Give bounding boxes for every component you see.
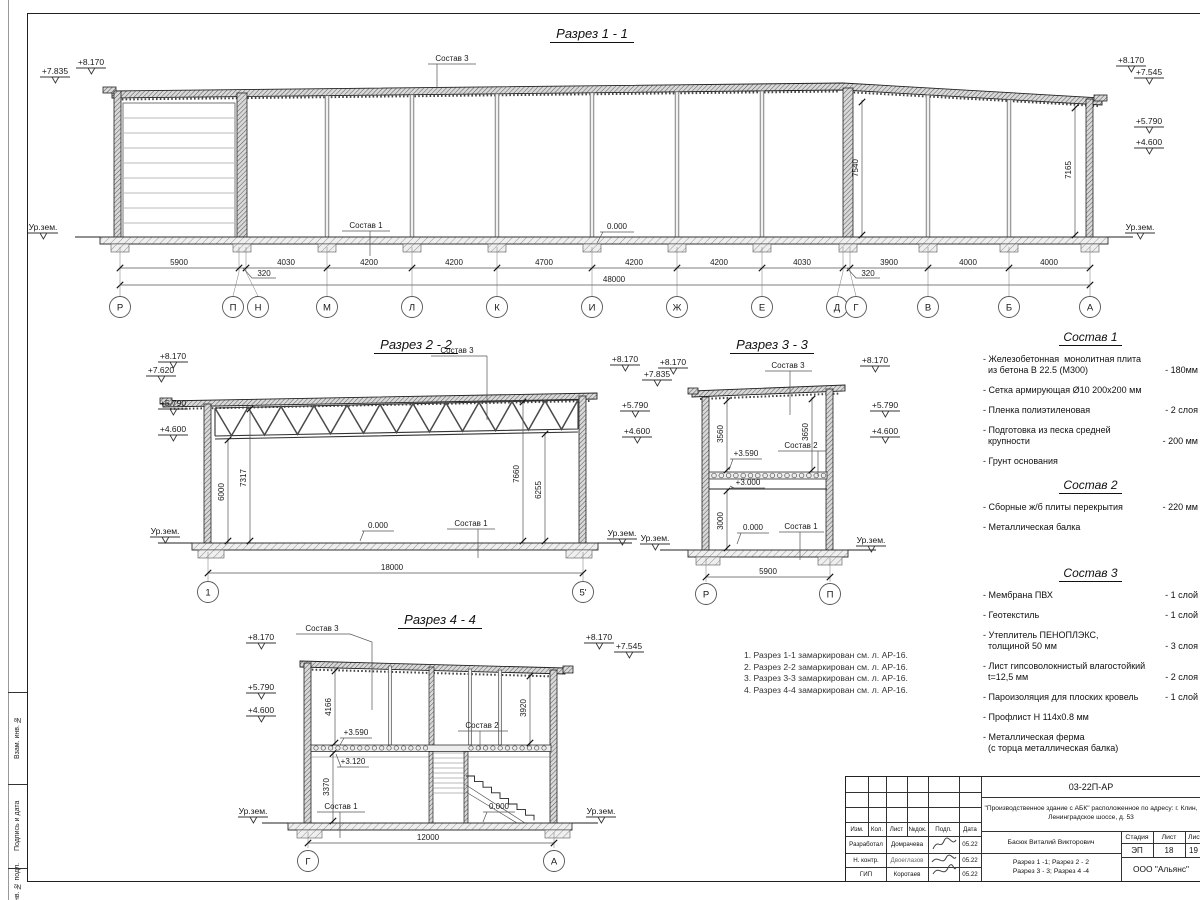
dim-label: 320 xyxy=(257,269,271,278)
sostav1-label: Состав 1 xyxy=(784,522,818,531)
svg-text:Е: Е xyxy=(759,303,765,314)
svg-text:И: И xyxy=(589,303,596,314)
axis-label: 1 xyxy=(205,588,210,599)
dim-label: 3900 xyxy=(880,258,898,267)
tb-date: 05.22 xyxy=(959,836,981,853)
svg-text:+4.600: +4.600 xyxy=(1136,137,1163,147)
composition-3: Состав 3 - Мембрана ПВХ- 1 слой - Геотек… xyxy=(983,566,1198,763)
section2-drawing: 6000 7317 7660 6255 Состав 3 0.000 Соста… xyxy=(146,346,652,603)
svg-text:Н: Н xyxy=(255,303,262,314)
svg-text:К: К xyxy=(494,303,500,314)
svg-text:Ур.зем.: Ур.зем. xyxy=(29,222,58,232)
composition-item: - Металлическая балка xyxy=(983,522,1198,533)
composition-1-title: Состав 1 xyxy=(983,330,1198,344)
dim-label: 4000 xyxy=(1040,258,1058,267)
notes: 1. Разрез 1-1 замаркирован см. л. АР-16.… xyxy=(744,650,964,696)
zero-level-label: 0.000 xyxy=(489,802,510,811)
svg-text:+4.600: +4.600 xyxy=(624,426,651,436)
tb-role: Разработал xyxy=(846,836,886,853)
composition-item: - Геотекстиль- 1 слой xyxy=(983,610,1198,621)
level-label: +3.590 xyxy=(344,728,369,737)
elevation-mark: +8.170 xyxy=(246,632,276,649)
section3-drawing: 3560 3650 3000 Состав 3 +3.590 Состав 2 … xyxy=(640,355,900,605)
tb-doc-number: 03-22П-АР xyxy=(981,777,1200,797)
svg-text:Ур.зем.: Ур.зем. xyxy=(587,806,616,816)
tb-col-ndok: №док. xyxy=(907,822,928,836)
elevation-mark: +8.170 xyxy=(76,57,106,74)
svg-text:+5.790: +5.790 xyxy=(1136,116,1163,126)
svg-text:+8.170: +8.170 xyxy=(78,57,105,67)
composition-item: - Подготовка из песка средней крупности-… xyxy=(983,425,1198,447)
drawing-sheet: Взам. инв. № Подпись и дата Инв. № подл.… xyxy=(0,0,1200,900)
dim-label: 4200 xyxy=(710,258,728,267)
tb-col-list: Лист xyxy=(886,822,907,836)
vdim-label: 6000 xyxy=(217,483,226,501)
axis-label: 5' xyxy=(579,588,586,599)
elevation-mark: +5.790 xyxy=(246,682,276,699)
composition-item: - Пароизоляция для плоских кровель- 1 сл… xyxy=(983,692,1198,703)
tb-sheet-titles: Разрез 1 -1; Разрез 2 - 2 Разрез 3 - 3; … xyxy=(981,853,1121,881)
note-line: 1. Разрез 1-1 замаркирован см. л. АР-16. xyxy=(744,650,964,662)
total-dim-label: 18000 xyxy=(381,563,404,572)
signature xyxy=(930,854,958,880)
sostav2-label: Состав 2 xyxy=(784,441,818,450)
section1-columns xyxy=(325,91,1011,237)
vdim-label: 7540 xyxy=(851,159,860,177)
sostav1-label: Состав 1 xyxy=(349,221,383,230)
note-line: 3. Разрез 3-3 замаркирован см. л. АР-16. xyxy=(744,673,964,685)
svg-text:+8.170: +8.170 xyxy=(1118,55,1145,65)
ground-level-mark: Ур.зем. xyxy=(238,806,268,823)
level-label: +3.000 xyxy=(736,478,761,487)
axis-label: Г xyxy=(305,857,310,868)
composition-item: - Лист гипсоволокнистый влагостойкий t=1… xyxy=(983,661,1198,683)
svg-text:+8.170: +8.170 xyxy=(586,632,613,642)
svg-text:Ур.зем.: Ур.зем. xyxy=(151,526,180,536)
total-dim-label: 12000 xyxy=(417,833,440,842)
signature xyxy=(930,836,958,853)
tb-col-data: Дата xyxy=(959,822,981,836)
elevation-mark: +4.600 xyxy=(870,426,900,443)
vdim-label: 7317 xyxy=(239,469,248,487)
composition-2-title: Состав 2 xyxy=(983,478,1198,492)
svg-text:+4.600: +4.600 xyxy=(160,424,187,434)
svg-text:+8.170: +8.170 xyxy=(660,357,687,367)
level-label: +3.120 xyxy=(341,757,366,766)
svg-text:Ур.зем.: Ур.зем. xyxy=(239,806,268,816)
dim-label: 4030 xyxy=(277,258,295,267)
tb-project-name: "Производственное здание с АБК" располож… xyxy=(984,797,1198,831)
ground-level-mark: Ур.зем. xyxy=(28,222,58,239)
svg-text:+5.790: +5.790 xyxy=(622,400,649,410)
axis-label: Р xyxy=(703,590,709,601)
tb-sheets-label: Лист xyxy=(1185,831,1200,843)
tb-role: Н. контр. xyxy=(846,853,886,867)
svg-text:Г: Г xyxy=(853,303,858,314)
vdim-label: 3370 xyxy=(322,778,331,796)
tb-stage-label: Стадия xyxy=(1121,831,1153,843)
composition-item: - Профлист Н 114х0.8 мм xyxy=(983,712,1198,723)
svg-text:Ур.зем.: Ур.зем. xyxy=(1126,222,1155,232)
composition-item: - Мембрана ПВХ- 1 слой xyxy=(983,590,1198,601)
total-dim-label: 5900 xyxy=(759,567,777,576)
tb-company: ООО "Альянс" xyxy=(1121,857,1200,881)
sostav3-label: Состав 3 xyxy=(440,346,474,355)
sostav1-label: Состав 1 xyxy=(454,519,488,528)
total-dim-label: 48000 xyxy=(603,275,626,284)
svg-text:+7.835: +7.835 xyxy=(42,66,69,76)
note-line: 2. Разрез 2-2 замаркирован см. л. АР-16. xyxy=(744,662,964,674)
elevation-mark: +4.600 xyxy=(246,705,276,722)
dim-label: 4200 xyxy=(360,258,378,267)
svg-text:+5.790: +5.790 xyxy=(160,398,187,408)
elevation-mark: +5.790 xyxy=(870,400,900,417)
tb-name: Домрачева xyxy=(886,836,928,853)
vdim-label: 3650 xyxy=(801,423,810,441)
note-line: 4. Разрез 4-4 замаркирован см. л. АР-16. xyxy=(744,685,964,697)
svg-text:Ж: Ж xyxy=(673,303,682,314)
svg-text:+7.835: +7.835 xyxy=(644,369,671,379)
elevation-mark: +8.170 xyxy=(610,354,640,371)
zero-level-label: 0.000 xyxy=(368,521,389,530)
svg-text:Л: Л xyxy=(409,303,415,314)
composition-item: - Грунт основания xyxy=(983,456,1198,467)
ground-level-mark: Ур.зем. xyxy=(1125,222,1155,239)
svg-text:Ур.зем.: Ур.зем. xyxy=(641,533,670,543)
svg-text:М: М xyxy=(323,303,331,314)
sostav1-label: Состав 1 xyxy=(324,802,358,811)
elevation-mark: +7.620 xyxy=(146,365,176,382)
vdim-label: 3920 xyxy=(519,699,528,717)
svg-text:+7.620: +7.620 xyxy=(148,365,175,375)
dim-label: 5900 xyxy=(170,258,188,267)
svg-text:Б: Б xyxy=(1006,303,1012,314)
svg-text:+8.170: +8.170 xyxy=(862,355,889,365)
svg-text:+8.170: +8.170 xyxy=(160,351,187,361)
elevation-mark: +4.600 xyxy=(1134,137,1164,154)
elevation-mark: +4.600 xyxy=(622,426,652,443)
dim-label: 4200 xyxy=(445,258,463,267)
elevation-mark: +5.790 xyxy=(158,398,188,415)
vdim-label: 3560 xyxy=(716,425,725,443)
svg-text:Ур.зем.: Ур.зем. xyxy=(857,535,886,545)
ground-level-mark: Ур.зем. xyxy=(607,528,637,545)
svg-text:+8.170: +8.170 xyxy=(248,632,275,642)
tb-role: ГИП xyxy=(846,867,886,881)
tb-sheet-label: Лист xyxy=(1153,831,1185,843)
elevation-mark: +5.790 xyxy=(620,400,650,417)
sostav3-label: Состав 3 xyxy=(305,624,339,633)
svg-text:Ур.зем.: Ур.зем. xyxy=(608,528,637,538)
composition-1: Состав 1 - Железобетонная монолитная пли… xyxy=(983,330,1198,476)
tb-name: Коротаев xyxy=(886,867,928,881)
composition-item: - Сетка армирующая Ø10 200х200 мм xyxy=(983,385,1198,396)
ground-level-mark: Ур.зем. xyxy=(150,526,180,543)
section1-drawing: Состав 3 Состав 1 0.000 7540 7165 +7.835… xyxy=(28,54,1164,318)
tb-col-podp: Подп. xyxy=(928,822,959,836)
svg-text:+5.790: +5.790 xyxy=(872,400,899,410)
elevation-mark: +7.835 xyxy=(642,369,672,386)
vdim-label: 4166 xyxy=(324,698,333,716)
tb-date: 05.22 xyxy=(959,867,981,881)
elevation-mark: +8.170 xyxy=(860,355,890,372)
level-label: +3.590 xyxy=(734,449,759,458)
elevation-mark: +8.170 xyxy=(584,632,614,649)
svg-text:Д: Д xyxy=(834,303,841,314)
tb-stage-value: ЭП xyxy=(1121,843,1153,857)
dim-label: 4030 xyxy=(793,258,811,267)
composition-2: Состав 2 - Сборные ж/б плиты перекрытия-… xyxy=(983,478,1198,542)
ground-level-mark: Ур.зем. xyxy=(856,535,886,552)
svg-text:А: А xyxy=(1087,303,1094,314)
dim-label: 320 xyxy=(861,269,875,278)
section1-footings xyxy=(111,244,1099,252)
svg-text:+7.545: +7.545 xyxy=(616,641,643,651)
svg-text:+4.600: +4.600 xyxy=(248,705,275,715)
title-block: Изм. Кол. Лист №док. Подп. Дата Разработ… xyxy=(845,776,1200,882)
svg-text:Р: Р xyxy=(117,303,123,314)
dim-label: 4000 xyxy=(959,258,977,267)
axis-label: А xyxy=(551,857,558,868)
axis-label: П xyxy=(827,590,834,601)
svg-text:+4.600: +4.600 xyxy=(872,426,899,436)
vdim-label: 7660 xyxy=(512,465,521,483)
tb-col-kol: Кол. xyxy=(868,822,886,836)
elevation-mark: +7.835 xyxy=(40,66,70,83)
section1-door xyxy=(123,103,235,237)
vdim-label: 6255 xyxy=(534,481,543,499)
section4-drawing: 4166 3920 3370 Состав 3 +3.590 Состав 2 … xyxy=(238,624,644,872)
composition-item: - Металлическая ферма (с торца металличе… xyxy=(983,732,1198,754)
svg-text:+5.790: +5.790 xyxy=(248,682,275,692)
tb-person: Басюк Виталий Викторович xyxy=(981,831,1121,853)
composition-3-title: Состав 3 xyxy=(983,566,1198,580)
composition-item: - Утеплитель ПЕНОПЛЭКС, толщиной 50 мм- … xyxy=(983,630,1198,652)
tb-sheet-value: 18 xyxy=(1153,843,1185,857)
vdim-label: 3000 xyxy=(716,512,725,530)
composition-item: - Сборные ж/б плиты перекрытия- 220 мм xyxy=(983,502,1198,513)
composition-item: - Железобетонная монолитная плита из бет… xyxy=(983,354,1198,376)
elevation-mark: +7.545 xyxy=(614,641,644,658)
svg-text:+8.170: +8.170 xyxy=(612,354,639,364)
sostav3-label: Состав 3 xyxy=(771,361,805,370)
tb-sheets-value: 19 xyxy=(1185,843,1200,857)
sostav2-label: Состав 2 xyxy=(465,721,499,730)
dim-label: 4200 xyxy=(625,258,643,267)
elevation-mark: +7.545 xyxy=(1134,67,1164,84)
tb-name: Двоеглазов xyxy=(886,853,928,867)
tb-date: 05.22 xyxy=(959,853,981,867)
zero-level-label: 0.000 xyxy=(607,222,628,231)
svg-text:П: П xyxy=(230,303,237,314)
svg-text:В: В xyxy=(925,303,931,314)
zero-level-label: 0.000 xyxy=(743,523,764,532)
svg-text:+7.545: +7.545 xyxy=(1136,67,1163,77)
dim-label: 4700 xyxy=(535,258,553,267)
sostav3-label: Состав 3 xyxy=(435,54,469,63)
tb-col-izm: Изм. xyxy=(846,822,868,836)
elevation-mark: +4.600 xyxy=(158,424,188,441)
ground-level-mark: Ур.зем. xyxy=(640,533,670,550)
composition-item: - Пленка полиэтиленовая- 2 слоя xyxy=(983,405,1198,416)
vdim-label: 7165 xyxy=(1064,161,1073,179)
ground-level-mark: Ур.зем. xyxy=(586,806,616,823)
elevation-mark: +5.790 xyxy=(1134,116,1164,133)
